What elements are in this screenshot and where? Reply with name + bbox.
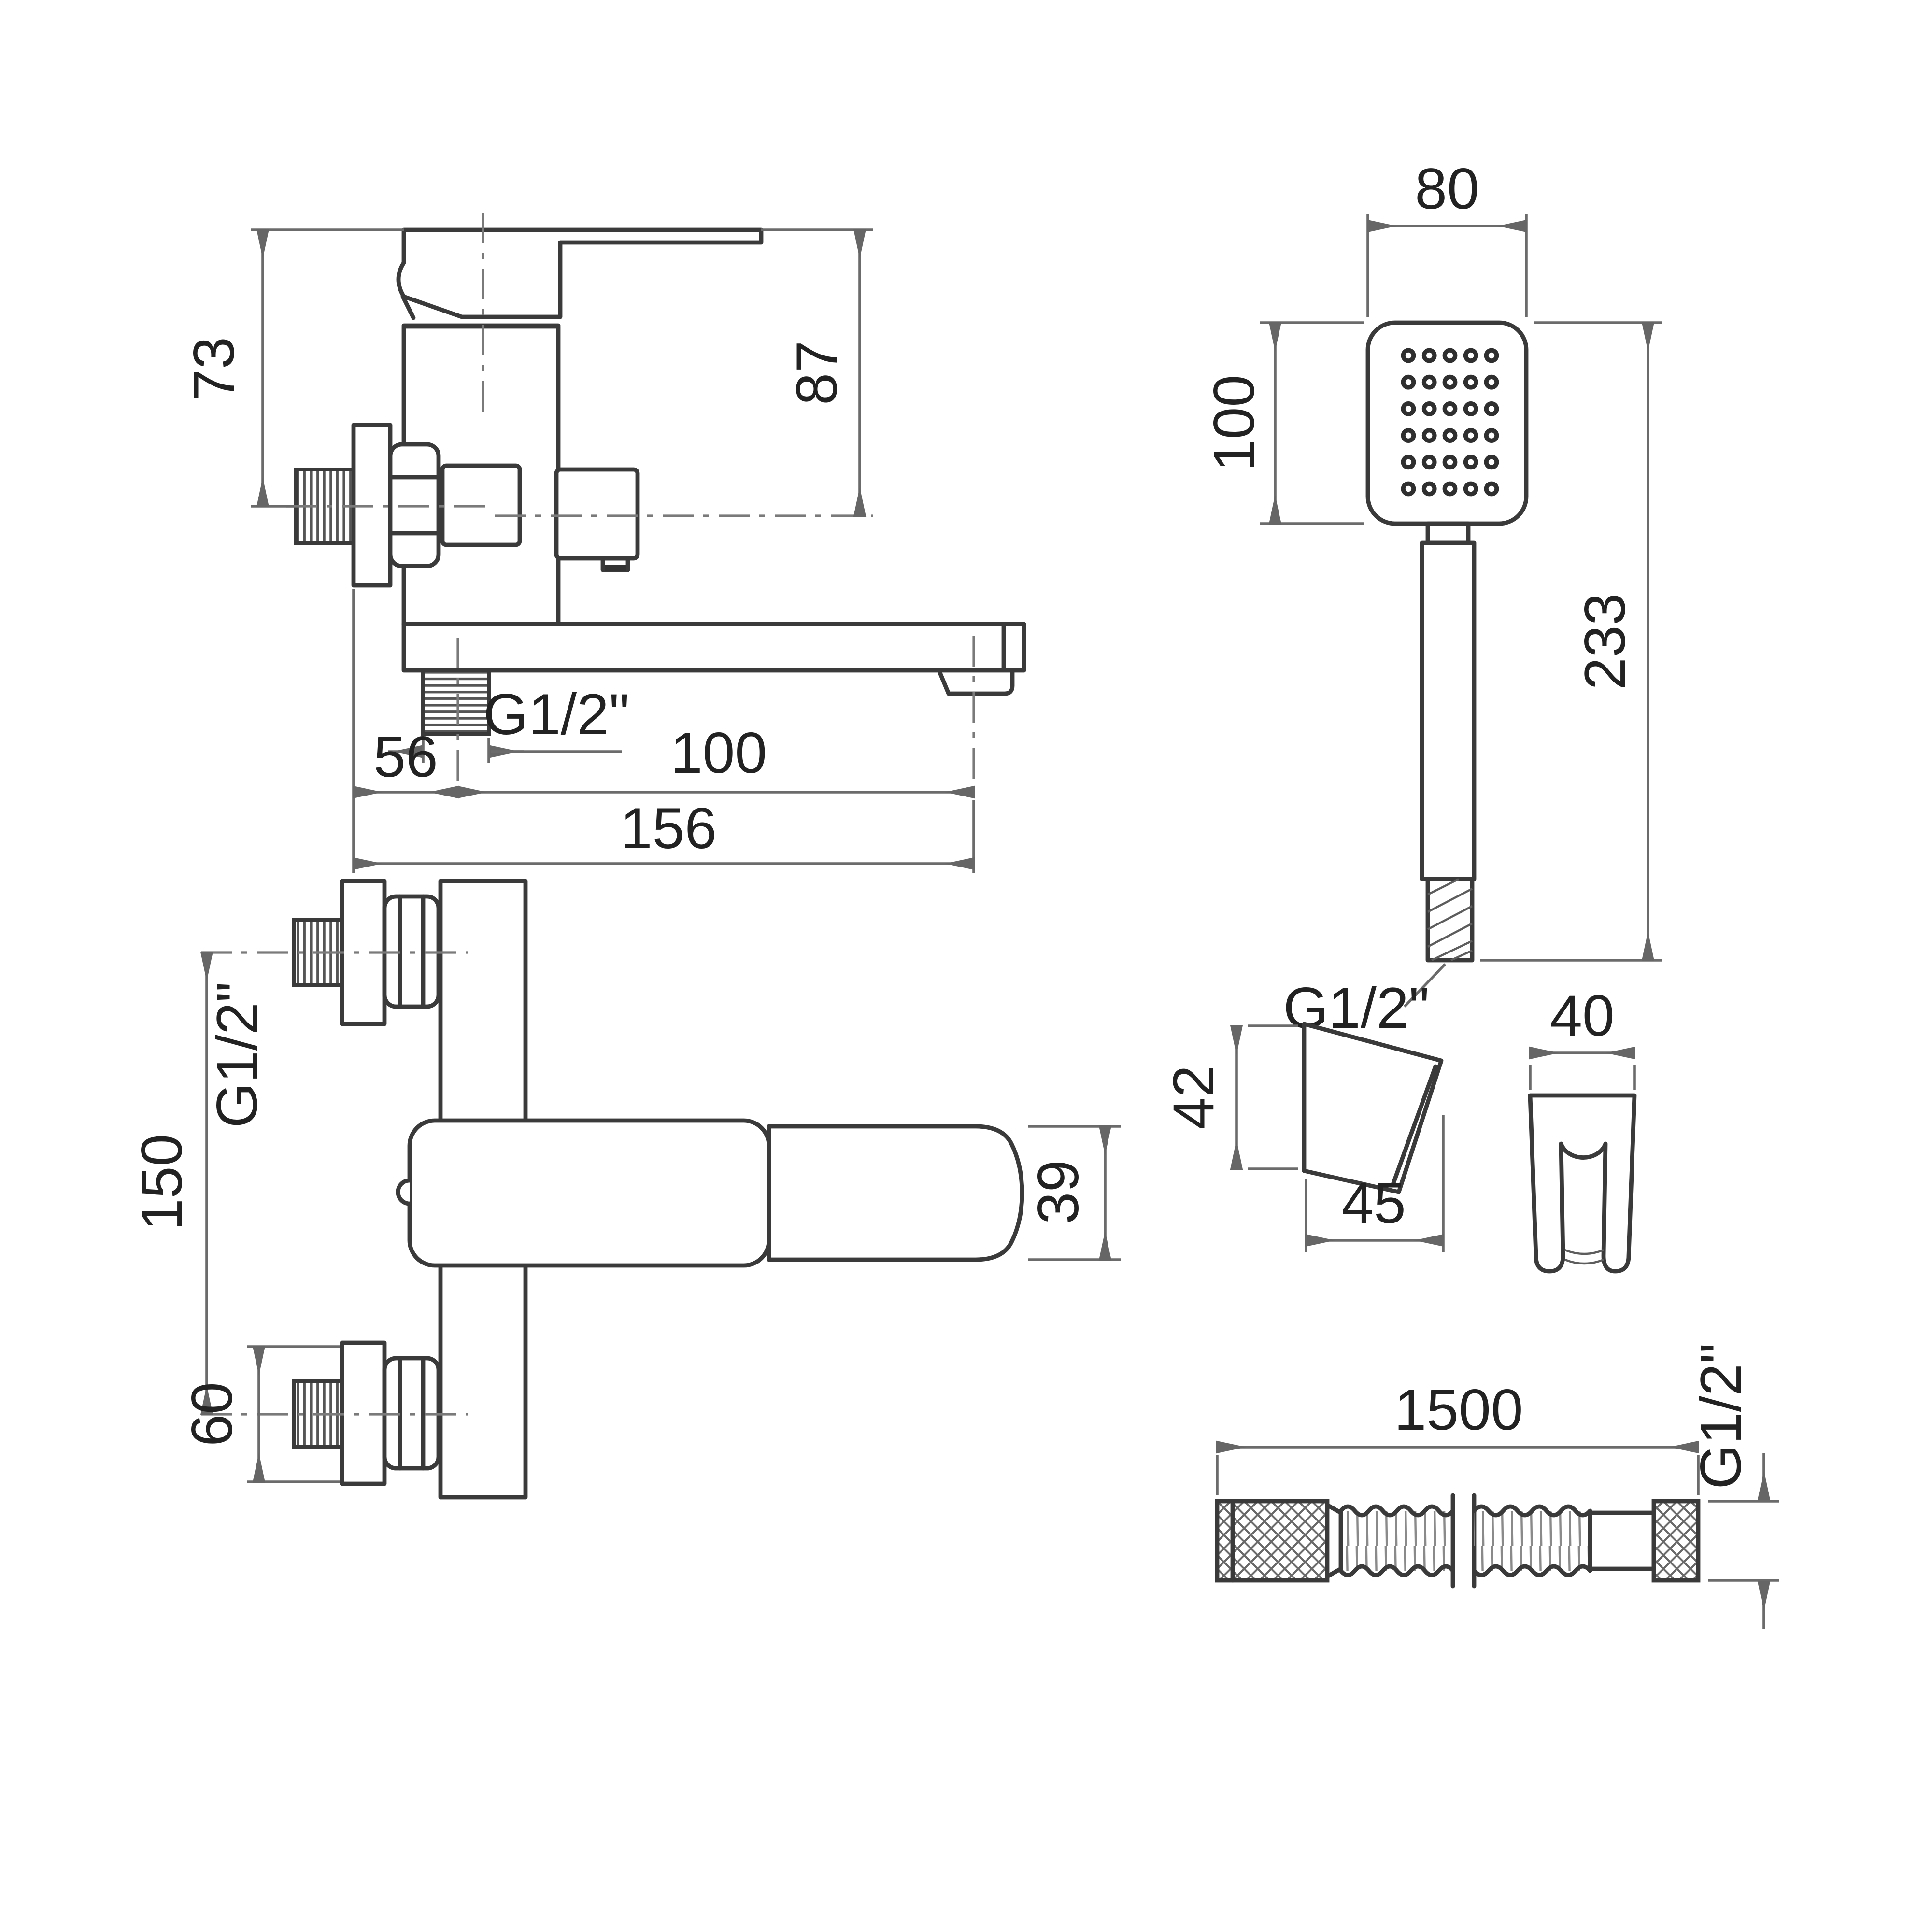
dim-label-thread-hose: G1/2" <box>1689 1343 1753 1490</box>
dim-label-150: 150 <box>129 1134 194 1231</box>
shower-handle <box>1422 543 1474 879</box>
hose-sleeve-right <box>1590 1513 1654 1569</box>
shower-thread <box>1428 879 1472 960</box>
spout-tube <box>404 624 1024 670</box>
dim-label-1500: 1500 <box>1394 1378 1523 1442</box>
mixer-body-plan <box>410 1121 769 1265</box>
spout-plan <box>769 1126 1022 1260</box>
hose-cone-left <box>1327 1505 1341 1577</box>
dim-label-42: 42 <box>1161 1065 1226 1129</box>
dim-label-73: 73 <box>182 337 246 401</box>
dim-label-56: 56 <box>373 724 438 789</box>
handle-pin-bump <box>398 1180 410 1204</box>
hose-corrugation-right <box>1474 1506 1590 1575</box>
dim-label-100-head: 100 <box>1202 375 1266 471</box>
dim-label-100-spout: 100 <box>670 721 767 785</box>
diverter-housing <box>556 469 638 558</box>
dim-label-233: 233 <box>1573 593 1637 690</box>
dim-label-87: 87 <box>784 341 849 405</box>
dim-label-thread-plan: G1/2" <box>205 982 270 1128</box>
spout-aerator <box>939 670 1012 694</box>
dim-label-39: 39 <box>1026 1160 1091 1224</box>
page-background <box>0 0 1932 1932</box>
dim-label-thread-side: G1/2" <box>483 682 630 747</box>
hose-corrugation-left <box>1341 1506 1453 1575</box>
hose-fitting-right <box>1654 1501 1698 1580</box>
dim-label-80: 80 <box>1415 156 1479 221</box>
technical-drawing-canvas: 73 87 G1/2" 56 100 156 <box>0 0 1932 1932</box>
dim-label-45: 45 <box>1341 1171 1406 1236</box>
dim-label-40: 40 <box>1550 983 1614 1048</box>
dim-label-156: 156 <box>620 796 717 861</box>
shower-neck <box>1428 524 1468 543</box>
dim-label-60: 60 <box>180 1382 244 1446</box>
